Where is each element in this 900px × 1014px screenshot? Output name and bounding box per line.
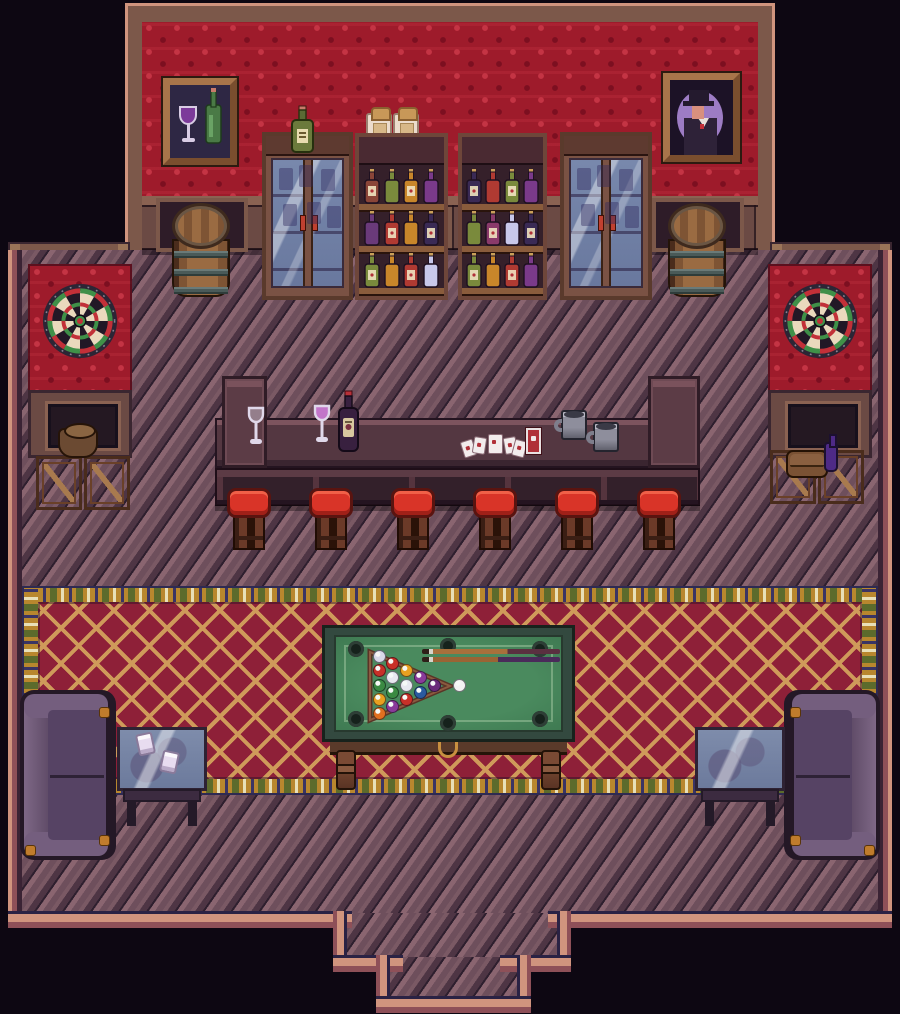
- shelf-row: [465, 252, 540, 288]
- basket: [58, 428, 98, 458]
- shelf-top-band: [462, 137, 543, 165]
- liquor-bottle: [522, 168, 540, 204]
- playing-card: [472, 436, 487, 455]
- liquor-bottle: [422, 168, 440, 204]
- glass-cabinet-left: [262, 132, 353, 300]
- gold-trim: [26, 846, 35, 855]
- couch-backrest: [24, 700, 50, 850]
- liquor-bottle: [522, 252, 540, 288]
- bar-stool[interactable]: [227, 488, 271, 554]
- shelf-top-band: [359, 137, 444, 165]
- stool-cushion: [637, 488, 681, 518]
- stool-legs: [643, 516, 675, 550]
- shelf-row: [362, 252, 441, 288]
- table-leg: [766, 800, 775, 826]
- bottle-silhouette: [619, 169, 633, 191]
- right-hutch: [768, 390, 872, 458]
- cabinet-handle: [598, 215, 604, 231]
- liquor-bottle: [503, 252, 521, 288]
- gold-trim: [100, 836, 109, 845]
- liquor-bottle: [484, 210, 502, 246]
- pool-ball: [414, 686, 427, 699]
- liquor-bottle: [465, 168, 483, 204]
- bottle-silhouette: [327, 206, 341, 228]
- couch-seat: [48, 710, 106, 840]
- cabinet-glass-doors: [569, 158, 643, 288]
- gentleman-portrait: [663, 73, 740, 162]
- pool-ball: [400, 679, 413, 692]
- wine-bottle: [337, 390, 360, 452]
- table-leg: [188, 800, 197, 826]
- liquor-bottle: [484, 168, 502, 204]
- stool-cushion: [555, 488, 599, 518]
- liquor-bottle: [383, 210, 401, 246]
- bottle-silhouette: [283, 204, 297, 226]
- pool-ball: [373, 679, 386, 692]
- exit-step-2[interactable]: [390, 957, 517, 999]
- right-wall-trim: [878, 250, 892, 928]
- bar-stool[interactable]: [637, 488, 681, 554]
- glass-cabinet-right: [560, 132, 652, 300]
- liquor-bottle: [383, 168, 401, 204]
- pool-ball: [373, 650, 386, 663]
- liquor-bottle: [422, 210, 440, 246]
- gold-trim: [791, 836, 800, 845]
- pool-table-felt: [334, 635, 563, 732]
- bottle-silhouette: [625, 206, 639, 228]
- liquor-bottle: [363, 168, 381, 204]
- bar-shadow: [215, 505, 700, 511]
- shelf-board: [462, 288, 543, 296]
- crate: [36, 456, 82, 510]
- wine-glass-full: [312, 404, 332, 448]
- bar-counter[interactable]: [215, 418, 700, 468]
- pool-ball: [373, 693, 386, 706]
- liquor-bottle: [363, 252, 381, 288]
- bottle-silhouette: [605, 202, 619, 224]
- shelf-row: [362, 168, 441, 204]
- pool-table-leg: [336, 750, 356, 790]
- gold-trim: [100, 708, 109, 717]
- bar-stool[interactable]: [555, 488, 599, 554]
- liquor-bottle: [503, 210, 521, 246]
- liquor-bottle: [484, 252, 502, 288]
- bottle-silhouette: [279, 168, 293, 190]
- couch-right: [784, 690, 880, 860]
- liquor-bottle: [402, 168, 420, 204]
- bar-stool[interactable]: [309, 488, 353, 554]
- crate: [84, 456, 130, 510]
- liquor-bottle: [402, 210, 420, 246]
- glass-table-top: [695, 727, 785, 791]
- violet-bottle: [824, 442, 838, 472]
- pool-ball: [373, 707, 386, 720]
- stool-cushion: [227, 488, 271, 518]
- bar-stool[interactable]: [473, 488, 517, 554]
- barrel-right: [666, 203, 728, 297]
- stool-cushion: [309, 488, 353, 518]
- stool-legs: [479, 516, 511, 550]
- bottle-silhouette: [321, 169, 335, 191]
- step-trim: [333, 955, 403, 973]
- saloon-room: Top-down pixel-art saloon game room: red…: [0, 0, 900, 1014]
- pool-ball: [400, 693, 413, 706]
- pocket: [532, 711, 548, 727]
- barrel-left: [170, 203, 232, 297]
- cue-ball: [453, 679, 466, 692]
- stool-legs: [397, 516, 429, 550]
- bottle-silhouette: [597, 165, 611, 187]
- stool-legs: [233, 516, 265, 550]
- bar-counter-front: [215, 468, 700, 506]
- right-hutch-panel: [785, 401, 861, 451]
- pool-ball: [373, 664, 386, 677]
- shelf-row: [465, 168, 540, 204]
- cue-stick[interactable]: [422, 657, 560, 662]
- liquor-bottle: [383, 252, 401, 288]
- bottle-silhouette: [581, 204, 595, 226]
- bottom-trim: [8, 911, 352, 929]
- table-leg: [705, 800, 714, 826]
- liquor-shelf-right: [458, 133, 547, 300]
- bar-stool[interactable]: [391, 488, 435, 554]
- liquor-bottle: [503, 168, 521, 204]
- stool-cushion: [473, 488, 517, 518]
- pool-table[interactable]: [322, 625, 575, 792]
- cabinet-glass-doors: [271, 158, 344, 288]
- portrait-art: [670, 80, 733, 155]
- satchel: [786, 450, 828, 478]
- shelf-board: [359, 288, 444, 296]
- step-trim: [500, 955, 571, 973]
- liquor-bottle: [363, 210, 381, 246]
- pool-table-ornament: [438, 742, 458, 758]
- liquor-bottle: [402, 252, 420, 288]
- cue-stick[interactable]: [422, 649, 560, 654]
- exit-step-1[interactable]: [347, 913, 557, 958]
- stool-legs: [561, 516, 593, 550]
- stool-legs: [315, 516, 347, 550]
- cabinet-header: [564, 136, 648, 156]
- liquor-bottle: [422, 252, 440, 288]
- couch-backrest: [850, 700, 876, 850]
- shelf-row: [362, 210, 441, 246]
- pool-ball: [386, 686, 399, 699]
- playing-card: [488, 434, 503, 454]
- dartboard-left[interactable]: [41, 282, 119, 365]
- stein: [593, 422, 619, 452]
- wine-glass-empty: [246, 406, 266, 450]
- carpet-border: [24, 588, 876, 602]
- stein: [561, 410, 587, 440]
- green-bottle: [289, 105, 316, 153]
- side-table-right: [695, 727, 785, 828]
- bottle-silhouette: [307, 202, 321, 224]
- bottle-silhouette: [577, 168, 591, 190]
- gold-trim: [791, 708, 800, 717]
- bottom-trim: [548, 911, 892, 929]
- card-deck: [526, 428, 541, 454]
- couch-left: [20, 690, 116, 860]
- bottle-silhouette: [299, 165, 313, 187]
- pool-table-leg: [541, 750, 561, 790]
- wine-painting-art: [170, 85, 230, 158]
- wine-still-life-painting: [163, 78, 237, 165]
- gold-trim: [865, 846, 874, 855]
- liquor-bottle: [522, 210, 540, 246]
- table-leg: [127, 800, 136, 826]
- cabinet-handle: [300, 215, 306, 231]
- liquor-shelf-left: [355, 133, 448, 300]
- dartboard-right[interactable]: [781, 282, 859, 365]
- liquor-bottle: [465, 252, 483, 288]
- couch-seat: [794, 710, 852, 840]
- pool-ball: [428, 679, 441, 692]
- liquor-bottle: [465, 210, 483, 246]
- stool-cushion: [391, 488, 435, 518]
- exit-doorway-trim: [376, 996, 531, 1014]
- shelf-row: [465, 210, 540, 246]
- side-table-left: [117, 727, 207, 828]
- bar-counter-right-return: [648, 376, 700, 468]
